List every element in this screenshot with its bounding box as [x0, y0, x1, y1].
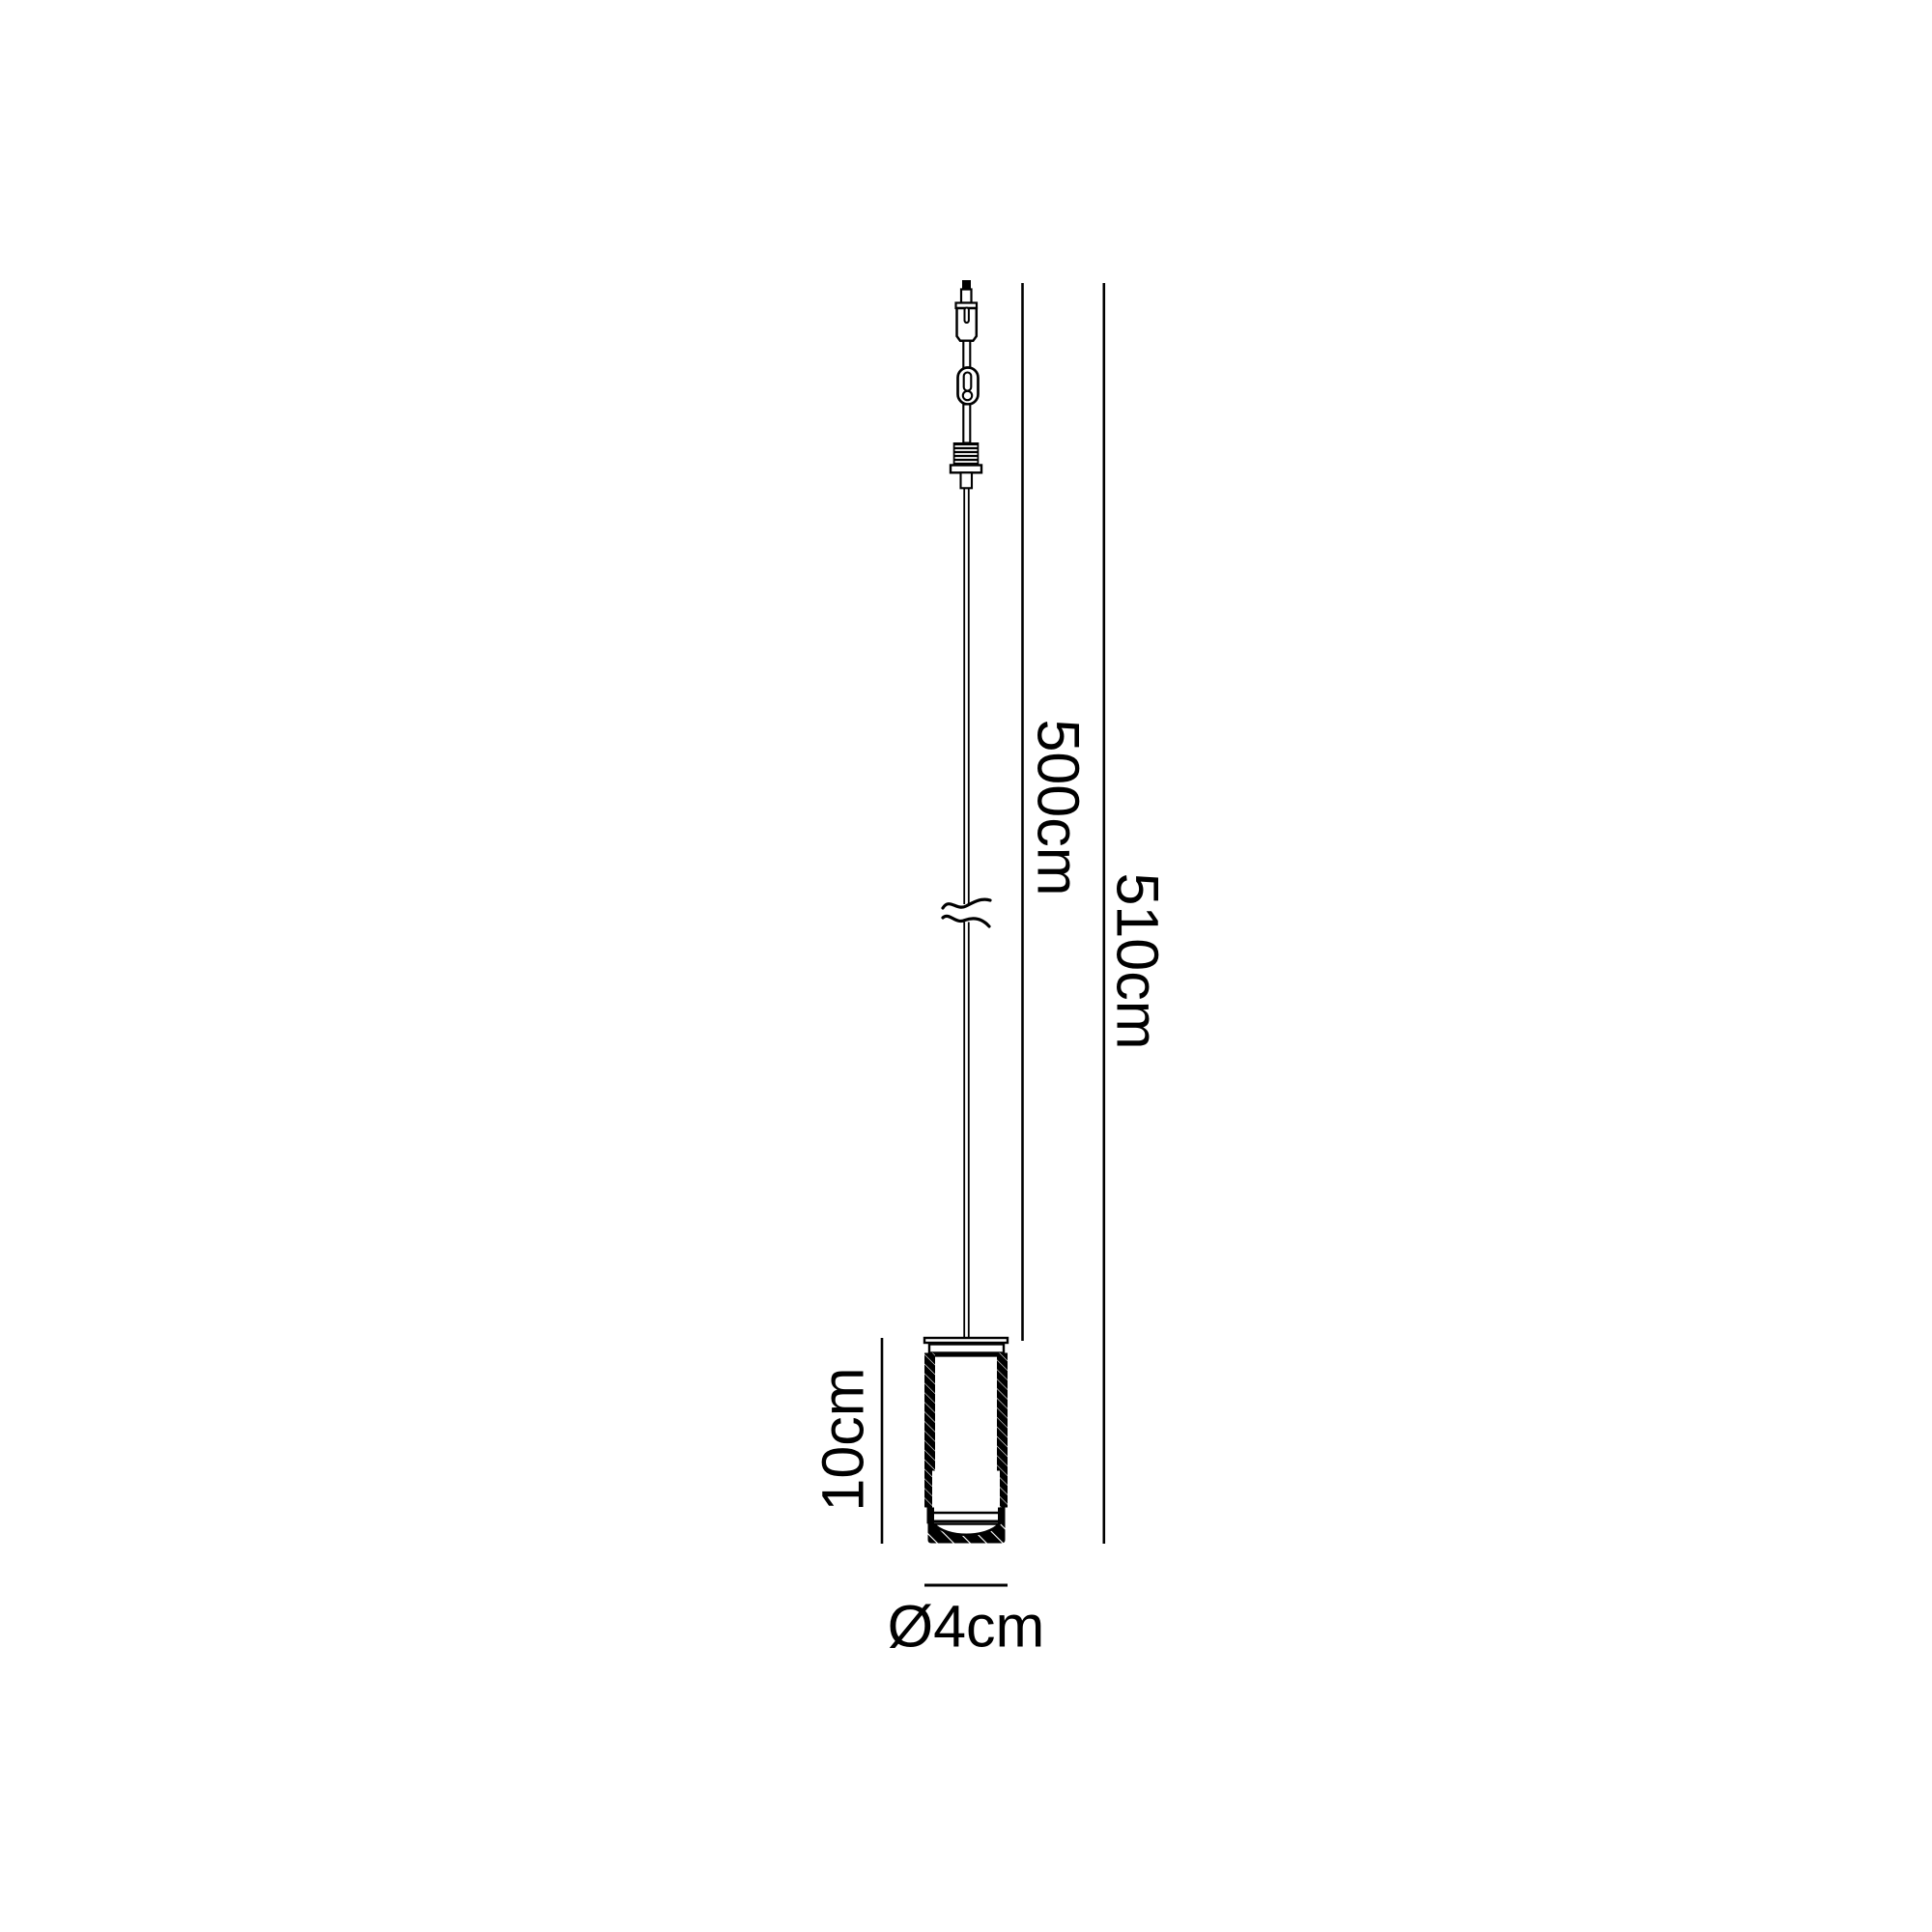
- flange-stem: [961, 472, 973, 488]
- chain-link-slot: [964, 373, 972, 391]
- stem-upper: [963, 341, 970, 368]
- shade-diameter-label: Ø4cm: [888, 1598, 1045, 1657]
- overall-height-label: 510cm: [1108, 872, 1167, 1049]
- dimension-lines: [882, 283, 1104, 1585]
- cylinder-shade: [924, 1338, 1008, 1544]
- shade-wall-right-upper: [997, 1353, 1008, 1471]
- shade-top-plate: [924, 1338, 1008, 1343]
- cord-grip-nub: [961, 290, 972, 303]
- diagram-stage: 500cm 510cm 10cm Ø4cm: [0, 0, 1932, 1932]
- ceiling-connector: [951, 280, 981, 488]
- shade-wall-right-lower: [1000, 1471, 1008, 1508]
- canopy-slot: [965, 308, 969, 324]
- suspension-cable: [964, 488, 969, 1338]
- shade-shoulder-left: [927, 1508, 935, 1524]
- shade-height-label: 10cm: [814, 1367, 873, 1511]
- stem-lower: [963, 405, 970, 443]
- cable-break-symbol: [943, 899, 990, 926]
- shade-wall-left-upper: [924, 1353, 935, 1471]
- chain-link-hole: [963, 391, 972, 400]
- shade-shoulder-right: [998, 1508, 1006, 1524]
- cable-length-label: 500cm: [1029, 719, 1088, 895]
- shade-wall-left-lower: [924, 1471, 932, 1508]
- shade-neck-band: [929, 1345, 1004, 1353]
- flange-plate: [951, 466, 981, 473]
